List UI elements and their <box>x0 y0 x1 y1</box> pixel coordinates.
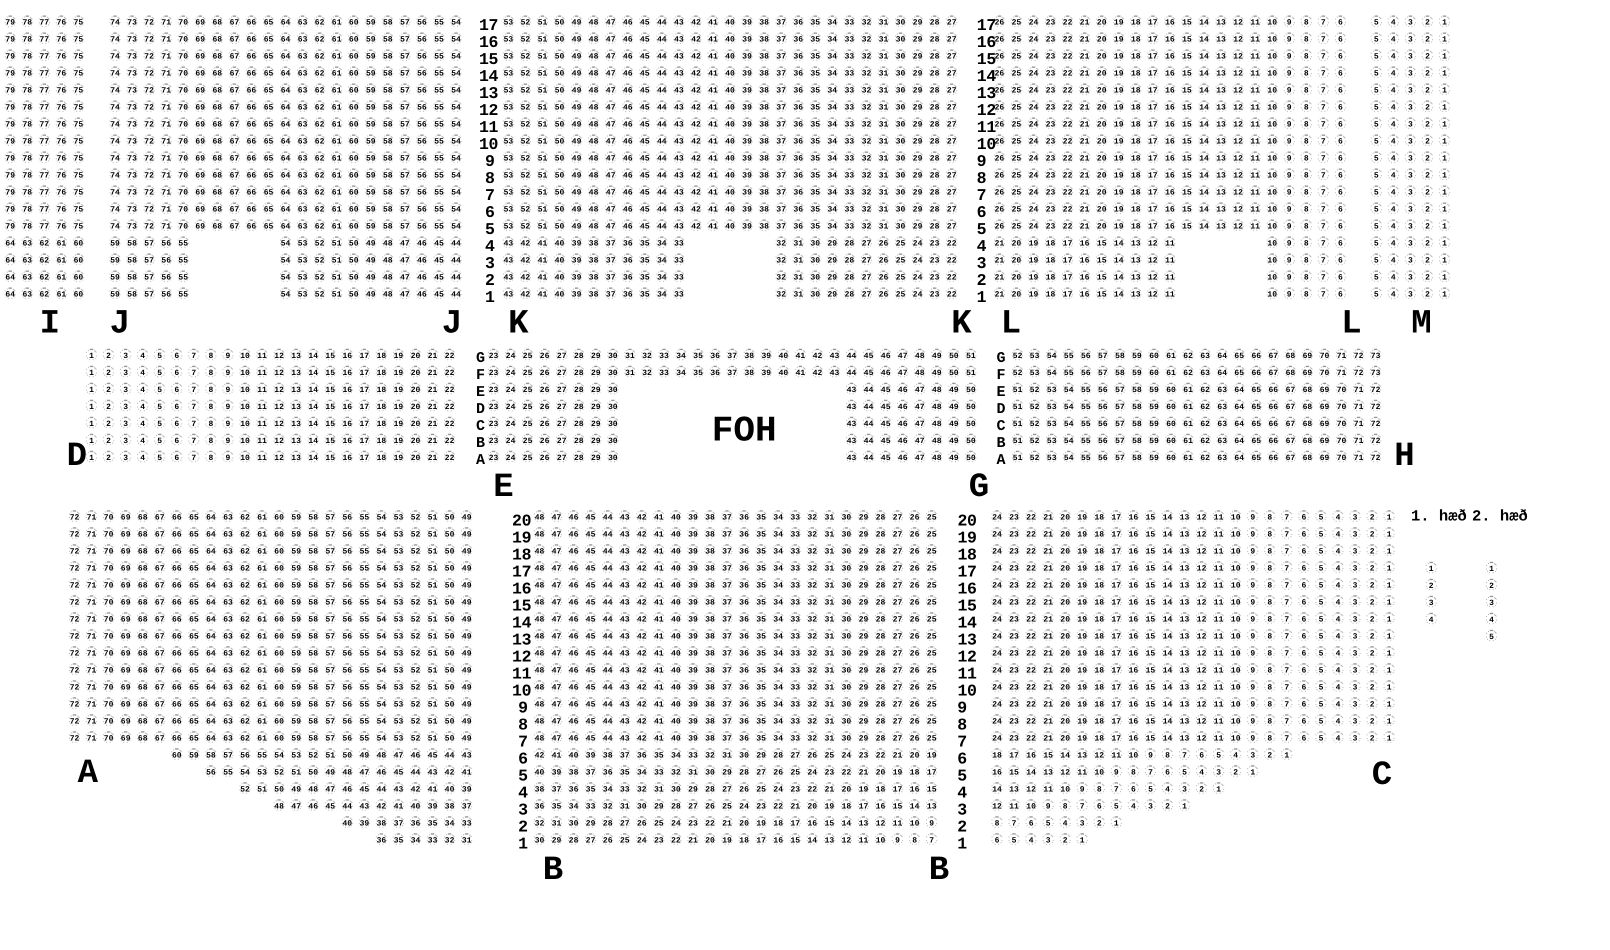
svg-text:1: 1 <box>1429 565 1434 574</box>
svg-text:E: E <box>493 469 513 507</box>
svg-text:747372717069686766656463626160: 7473727170696867666564636261605958575655… <box>110 172 461 181</box>
svg-text:2: 2 <box>1429 582 1434 591</box>
svg-text:262524232221201918171615141312: 26252423222120191817161514131211109876 <box>995 19 1343 28</box>
svg-text:B: B <box>996 435 1005 452</box>
svg-text:262524232221201918171615141312: 26252423222120191817161514131211109876 <box>995 155 1343 164</box>
svg-text:K: K <box>508 306 529 344</box>
svg-text:747372717069686766656463626160: 7473727170696867666564636261605958575655… <box>110 155 461 164</box>
svg-text:G: G <box>996 350 1005 367</box>
svg-text:A: A <box>78 755 99 793</box>
svg-text:747372717069686766656463626160: 7473727170696867666564636261605958575655… <box>110 70 461 79</box>
svg-text:C: C <box>996 418 1005 435</box>
svg-text:M: M <box>1411 306 1431 344</box>
svg-text:2120191817161514131211109876: 2120191817161514131211109876 <box>995 240 1343 249</box>
svg-text:FOH: FOH <box>712 411 777 452</box>
svg-text:E: E <box>476 384 485 401</box>
svg-text:F: F <box>996 367 1005 384</box>
svg-text:4: 4 <box>1429 616 1434 625</box>
svg-text:262524232221201918171615141312: 26252423222120191817161514131211109876 <box>995 189 1343 198</box>
svg-text:747372717069686766656463626160: 7473727170696867666564636261605958575655… <box>110 138 461 147</box>
svg-text:D: D <box>996 401 1005 418</box>
svg-text:2120191817161514131211109876: 2120191817161514131211109876 <box>995 291 1343 300</box>
svg-text:595857565554535251504948474645: 59585756555453525150494847464544 <box>110 240 461 249</box>
svg-text:B: B <box>543 852 563 890</box>
svg-text:D: D <box>476 401 485 418</box>
svg-text:595857565554535251504948474645: 59585756555453525150494847464544 <box>110 291 461 300</box>
svg-text:G: G <box>969 469 989 507</box>
svg-text:A: A <box>476 452 485 469</box>
svg-text:1: 1 <box>1489 565 1494 574</box>
svg-text:262524232221201918171615141312: 26252423222120191817161514131211109876 <box>995 121 1343 130</box>
svg-text:K: K <box>951 306 972 344</box>
svg-text:2120191817161514131211109876: 2120191817161514131211109876 <box>995 274 1343 283</box>
svg-text:2: 2 <box>1489 582 1494 591</box>
svg-text:747372717069686766656463626160: 7473727170696867666564636261605958575655… <box>110 104 461 113</box>
svg-text:232425262728293031323334353637: 2324252627282930313233343536373839404142… <box>489 369 976 378</box>
svg-text:747372717069686766656463626160: 7473727170696867666564636261605958575655… <box>110 189 461 198</box>
svg-text:747372717069686766656463626160: 7473727170696867666564636261605958575655… <box>110 36 461 45</box>
svg-text:3: 3 <box>1429 599 1434 608</box>
svg-text:5: 5 <box>1489 633 1494 642</box>
svg-text:2120191817161514131211109876: 2120191817161514131211109876 <box>995 257 1343 266</box>
svg-text:747372717069686766656463626160: 7473727170696867666564636261605958575655… <box>110 53 461 62</box>
svg-text:C: C <box>1372 757 1392 795</box>
svg-text:J: J <box>110 306 130 344</box>
svg-text:3: 3 <box>1489 599 1494 608</box>
svg-text:262524232221201918171615141312: 26252423222120191817161514131211109876 <box>995 36 1343 45</box>
svg-text:262524232221201918171615141312: 26252423222120191817161514131211109876 <box>995 70 1343 79</box>
svg-text:2. hæð: 2. hæð <box>1472 508 1528 526</box>
svg-text:B: B <box>929 852 949 890</box>
svg-text:I: I <box>40 306 60 344</box>
svg-text:G: G <box>476 350 485 367</box>
svg-text:L: L <box>1001 306 1021 344</box>
svg-text:262524232221201918171615141312: 26252423222120191817161514131211109876 <box>995 53 1343 62</box>
svg-text:262524232221201918171615141312: 26252423222120191817161514131211109876 <box>995 223 1343 232</box>
svg-text:H: H <box>1394 438 1414 476</box>
svg-text:747372717069686766656463626160: 7473727170696867666564636261605958575655… <box>110 206 461 215</box>
svg-text:E: E <box>996 384 1005 401</box>
svg-text:J: J <box>442 306 462 344</box>
svg-text:1: 1 <box>977 288 987 307</box>
svg-text:B: B <box>476 435 485 452</box>
svg-text:262524232221201918171615141312: 26252423222120191817161514131211109876 <box>995 172 1343 181</box>
svg-text:747372717069686766656463626160: 7473727170696867666564636261605958575655… <box>110 87 461 96</box>
svg-text:595857565554535251504948474645: 59585756555453525150494847464544 <box>110 274 461 283</box>
svg-text:1: 1 <box>957 835 967 854</box>
svg-text:262524232221201918171615141312: 26252423222120191817161514131211109876 <box>995 87 1343 96</box>
svg-text:747372717069686766656463626160: 7473727170696867666564636261605958575655… <box>110 223 461 232</box>
svg-text:1. hæð: 1. hæð <box>1411 508 1467 526</box>
svg-text:747372717069686766656463626160: 7473727170696867666564636261605958575655… <box>110 121 461 130</box>
svg-text:1: 1 <box>518 835 528 854</box>
svg-text:4: 4 <box>1489 616 1494 625</box>
svg-text:262524232221201918171615141312: 26252423222120191817161514131211109876 <box>995 138 1343 147</box>
svg-text:262524232221201918171615141312: 26252423222120191817161514131211109876 <box>995 104 1343 113</box>
svg-text:595857565554535251504948474645: 59585756555453525150494847464544 <box>110 257 461 266</box>
svg-text:747372717069686766656463626160: 7473727170696867666564636261605958575655… <box>110 19 461 28</box>
svg-text:232425262728293031323334353637: 2324252627282930313233343536373839404142… <box>489 352 976 361</box>
svg-text:D: D <box>67 438 87 476</box>
svg-text:262524232221201918171615141312: 26252423222120191817161514131211109876 <box>995 206 1343 215</box>
svg-text:C: C <box>476 418 485 435</box>
svg-text:L: L <box>1341 306 1361 344</box>
svg-text:F: F <box>476 367 485 384</box>
svg-text:A: A <box>996 452 1005 469</box>
svg-text:1: 1 <box>485 288 495 307</box>
